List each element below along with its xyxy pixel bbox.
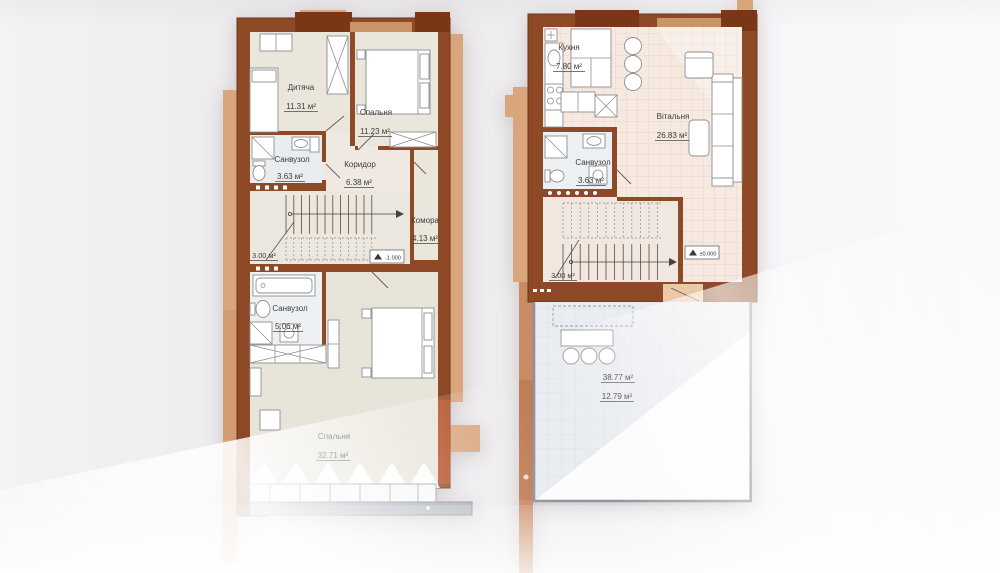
- elevation-mark: -1.000: [370, 250, 404, 263]
- stairs-area: 3.00 м²: [551, 271, 575, 280]
- elevation-value: ±0.000: [699, 252, 716, 258]
- room-area: 26.83 м²: [657, 131, 688, 140]
- floor-plan-left: Дитяча 11.31 м² Спальня 11.23 м² Санвузо…: [200, 10, 480, 563]
- room-name: Комора: [411, 216, 440, 225]
- terrace: [533, 302, 752, 502]
- terrace-door-opening: [663, 284, 703, 302]
- watermark-streak: [0, 505, 1000, 573]
- room-name: Спальня: [318, 432, 350, 441]
- room-area: 3.63 м²: [277, 172, 303, 181]
- garden-fence: [519, 282, 533, 573]
- room-name: Кухня: [558, 43, 579, 52]
- room-name: Санвузол: [274, 155, 310, 164]
- room-name: Санвузол: [272, 304, 308, 313]
- room-area: 5.06 м²: [275, 322, 301, 331]
- floor-plan-right: Кухня 7.80 м² Вітальня 26.83 м² Санвузол…: [505, 0, 790, 573]
- stairs-label: 3.00 м²: [549, 271, 577, 281]
- stairs-label: 3.00 м²: [250, 251, 278, 261]
- elevation-mark: ±0.000: [685, 246, 719, 259]
- terrace-table: [561, 330, 613, 346]
- stairs-area: 3.00 м²: [252, 251, 276, 260]
- room-name: Коридор: [344, 160, 376, 169]
- floorplan-canvas: Дитяча 11.31 м² Спальня 11.23 м² Санвузо…: [0, 0, 1000, 573]
- room-name: Санвузол: [575, 158, 611, 167]
- room-name: Дитяча: [288, 83, 315, 92]
- room-area: 3.63 м²: [578, 176, 604, 185]
- room-area: 11.23 м²: [360, 127, 390, 136]
- room-name: Вітальня: [657, 112, 690, 121]
- room-area: 6.38 м²: [346, 178, 372, 187]
- terrace-area-total: 38.77 м²: [603, 373, 634, 382]
- room-area: 32.71 м²: [318, 451, 349, 460]
- room-area: 4.13 м²: [412, 234, 438, 243]
- room-area: 11.31 м²: [286, 102, 316, 111]
- elevation-value: -1.000: [385, 256, 401, 262]
- terrace-area: 12.79 м²: [602, 392, 633, 401]
- room-name: Спальня: [360, 108, 392, 117]
- sill: [250, 502, 472, 515]
- room-area: 7.80 м²: [556, 62, 582, 71]
- top-shade: [0, 0, 1000, 26]
- wardrobe-x: [250, 345, 326, 363]
